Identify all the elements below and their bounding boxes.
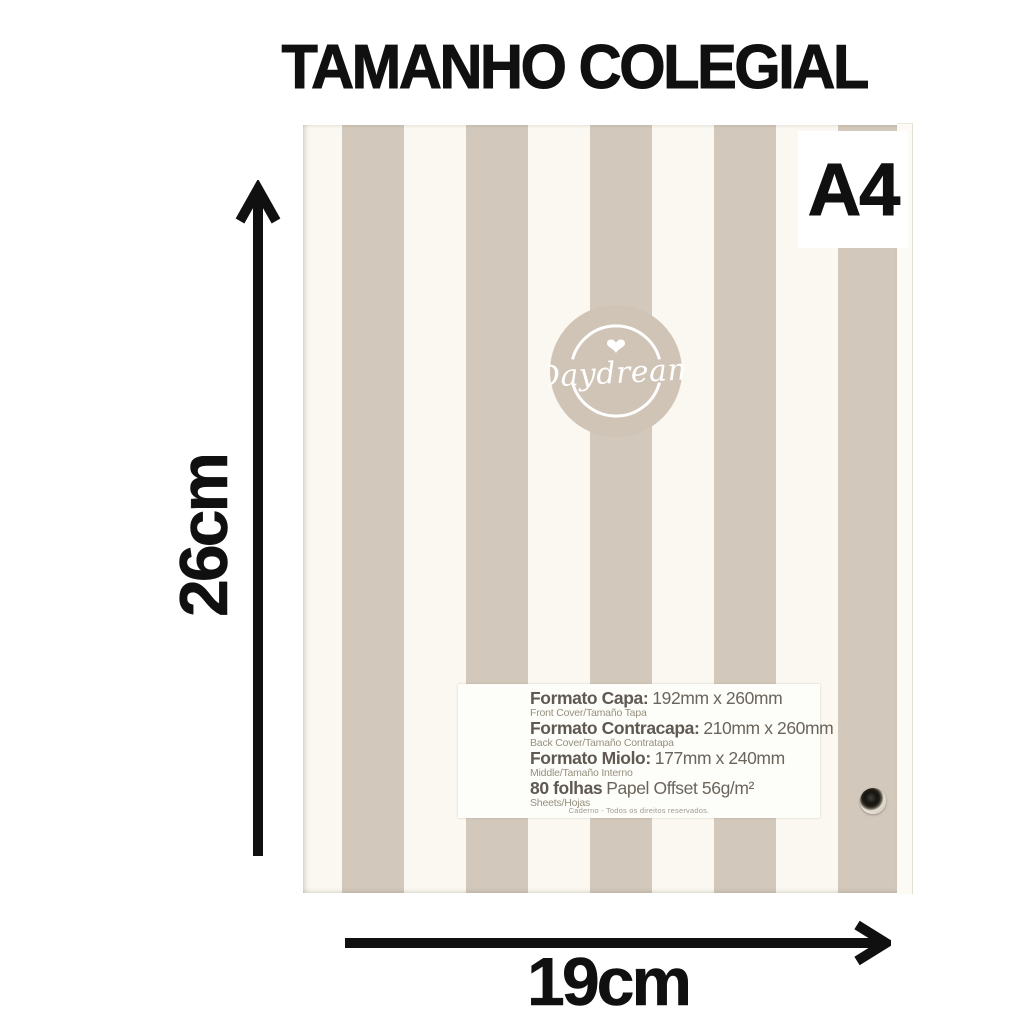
spec-name: Formato Miolo: (530, 748, 651, 768)
spec-value: 192mm x 260mm (652, 688, 782, 708)
spec-row: Formato Miolo:177mm x 240mm Middle/Tamañ… (530, 749, 820, 779)
width-dimension-label: 19cm (498, 946, 718, 1018)
product-dimension-diagram: TAMANHO COLEGIAL 26cm 19cm Daydream A4 F… (0, 0, 1024, 1024)
eyelet (860, 788, 886, 814)
page-title: TAMANHO COLEGIAL (282, 36, 837, 100)
spec-value: 177mm x 240mm (655, 748, 785, 768)
spec-label: Formato Capa:192mm x 260mm Front Cover/T… (458, 684, 820, 818)
size-badge: A4 (798, 131, 908, 248)
height-dimension-label: 26cm (169, 451, 239, 621)
spec-name: Formato Contracapa: (530, 718, 699, 738)
spec-value: Papel Offset 56g/m² (606, 778, 754, 798)
spec-row: 80 folhasPapel Offset 56g/m² Sheets/Hoja… (530, 779, 820, 809)
spec-row: Formato Contracapa:210mm x 260mm Back Co… (530, 719, 820, 749)
spec-name: Formato Capa: (530, 688, 648, 708)
daydream-logo: Daydream (548, 303, 684, 439)
spec-row: Formato Capa:192mm x 260mm Front Cover/T… (530, 689, 820, 719)
spec-name: 80 folhas (530, 778, 602, 798)
spec-value: 210mm x 260mm (703, 718, 833, 738)
spec-footnote: Caderno - Todos os direitos reservados. (458, 806, 820, 815)
